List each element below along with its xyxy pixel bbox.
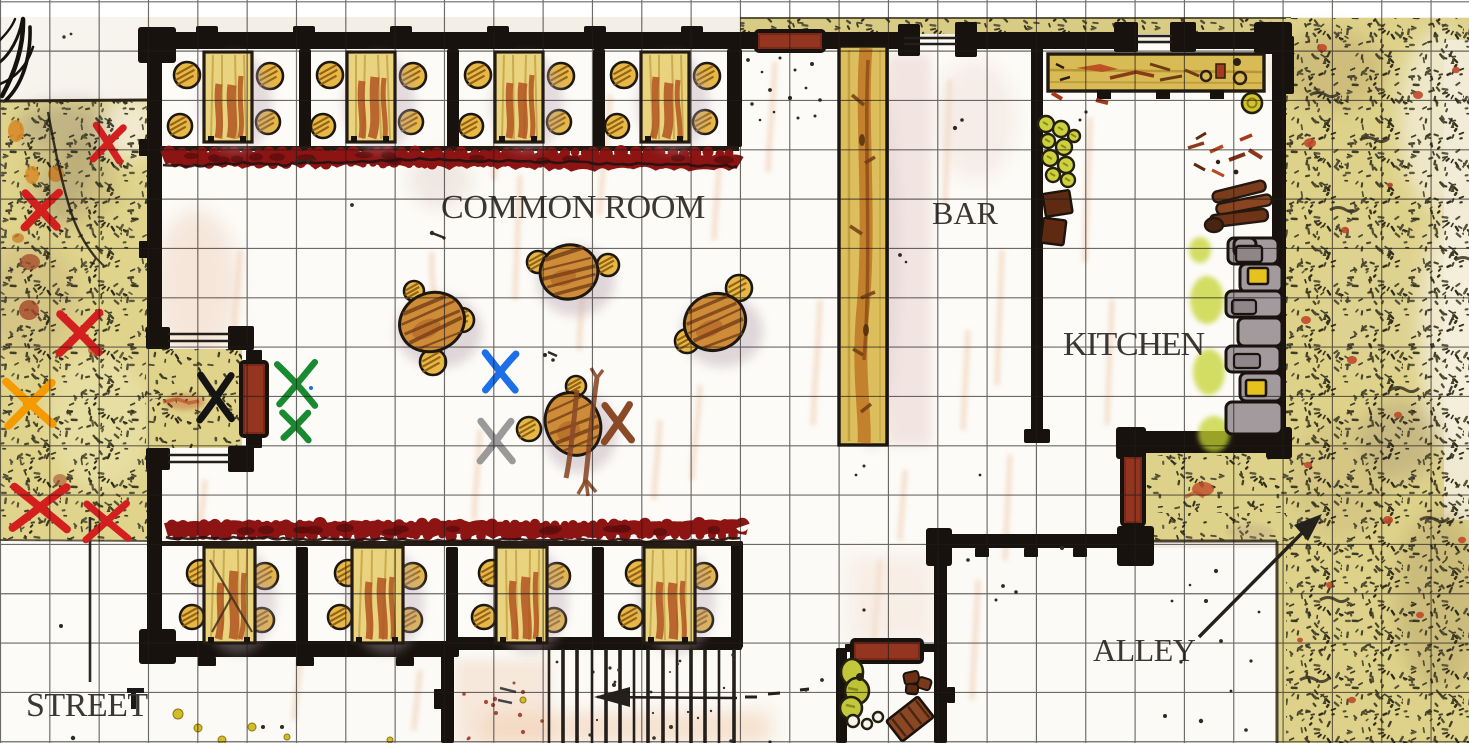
svg-text:ALLEY: ALLEY	[1093, 632, 1196, 668]
svg-text:COMMON ROOM: COMMON ROOM	[441, 189, 705, 226]
svg-text:BAR: BAR	[932, 195, 998, 231]
svg-text:KITCHEN: KITCHEN	[1063, 326, 1204, 363]
